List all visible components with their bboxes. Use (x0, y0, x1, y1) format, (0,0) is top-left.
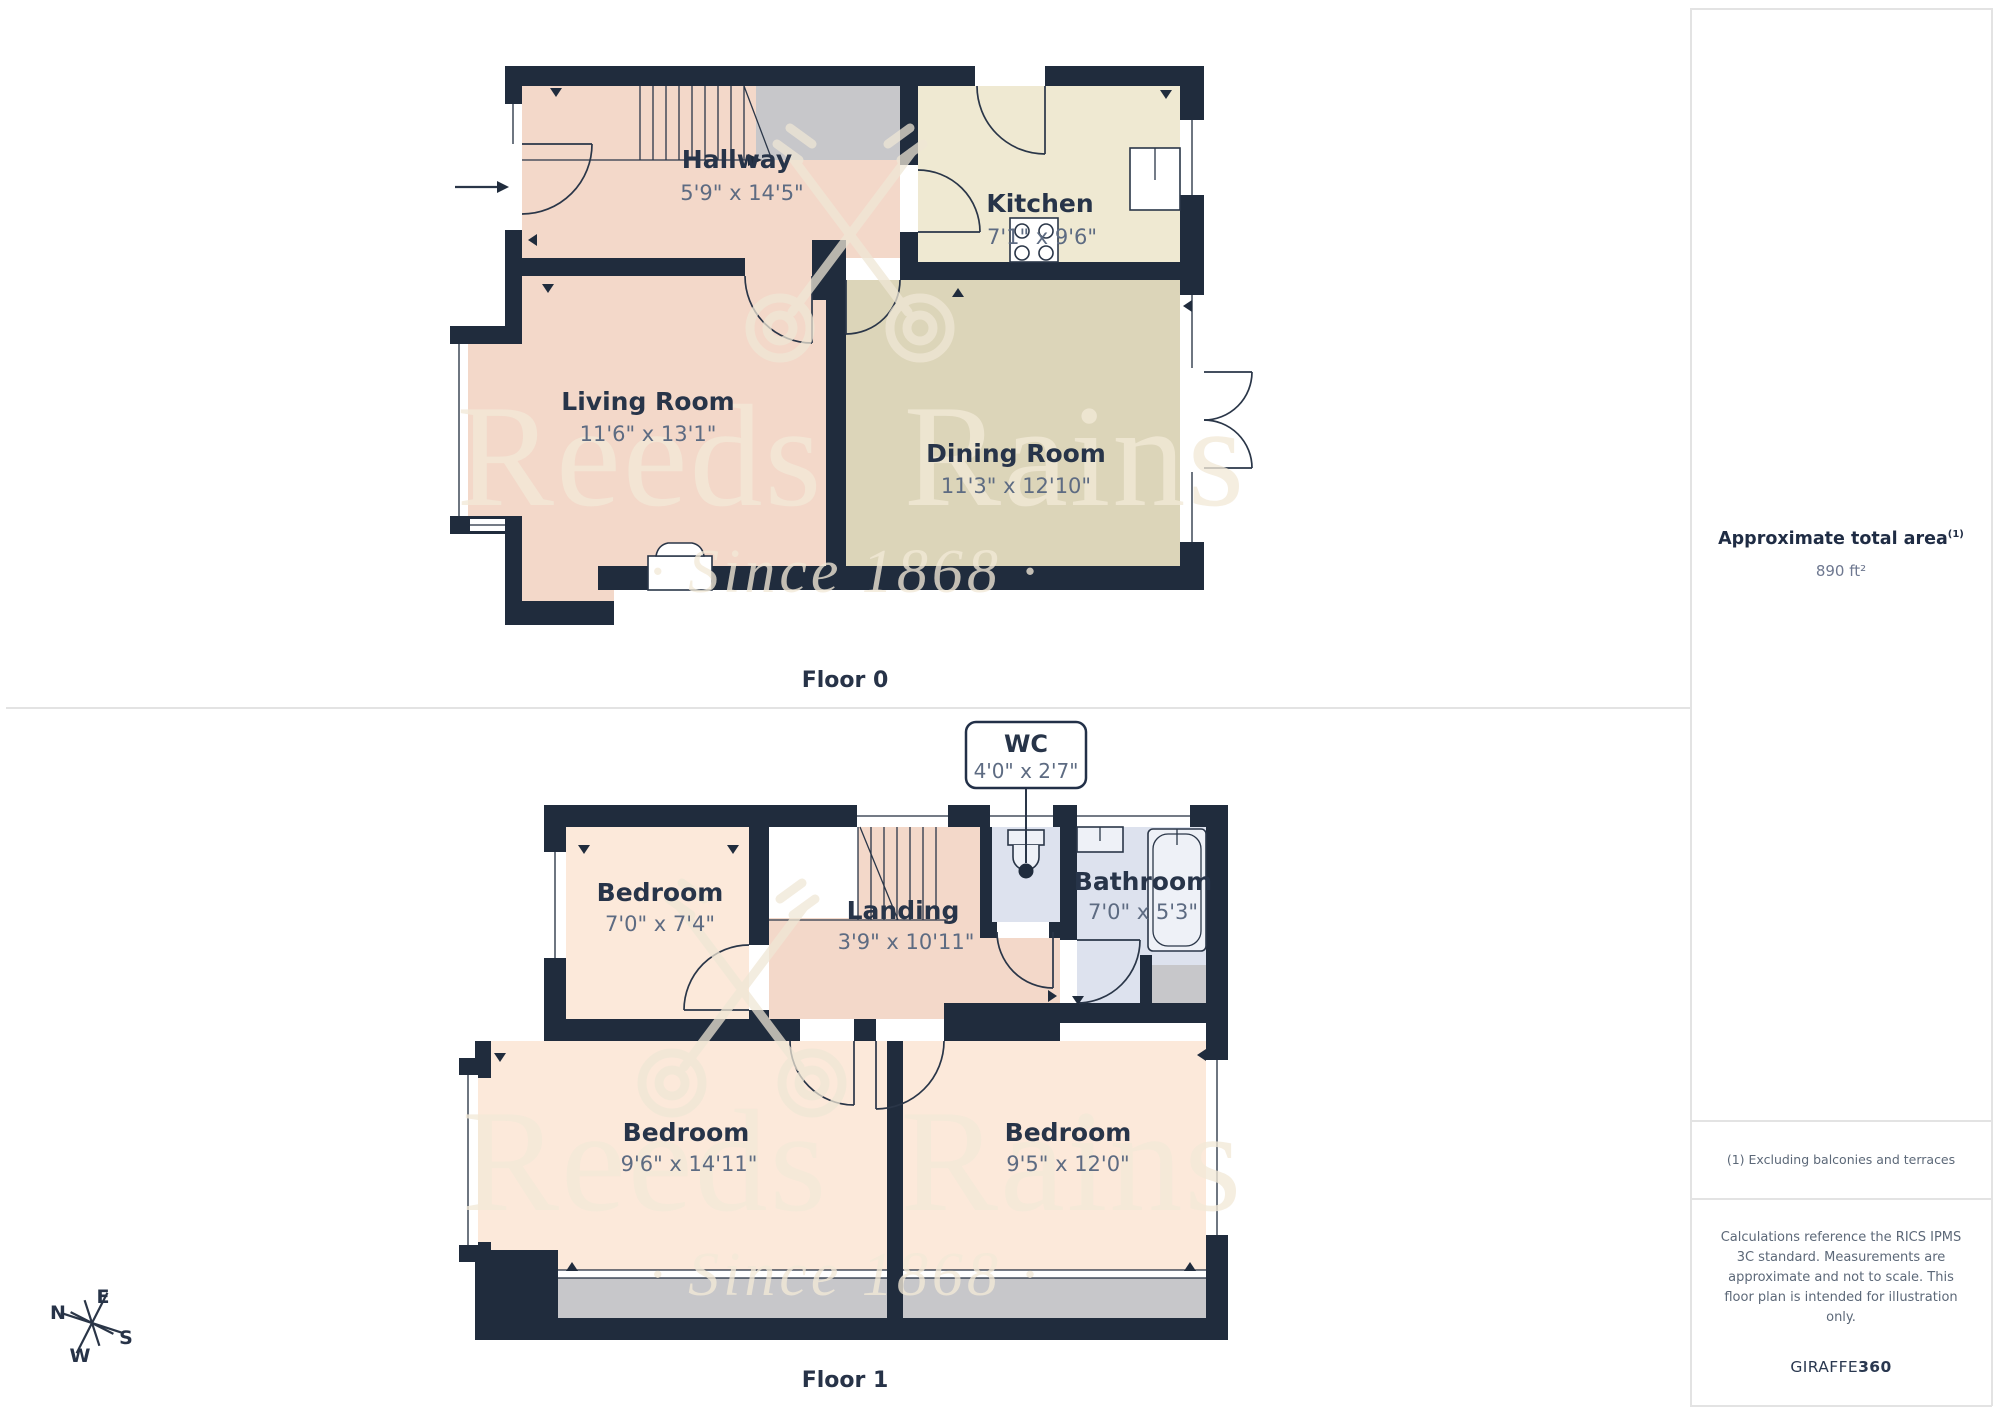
divider-floors (6, 707, 1690, 709)
sidebar-footnote-cell: (1) Excluding balconies and terraces (1690, 1121, 1992, 1198)
sink-icon (1077, 827, 1123, 852)
hall-door-gap (745, 258, 812, 276)
back-door-gap (975, 66, 1045, 86)
compass-n: N (50, 1302, 66, 1324)
bedroom-left-dims: 9'6" x 14'11" (621, 1152, 758, 1176)
kitchen-dims: 7'1" x 9'6" (987, 225, 1097, 249)
floorplan-page: Reeds Rains · Since 1868 · Hallway 5'9" … (0, 0, 2000, 1414)
sidebar-bottom-border (1690, 1405, 1992, 1407)
wc-callout-dot (1019, 864, 1034, 879)
compass: N E S W (50, 1286, 133, 1367)
hallway-dims: 5'9" x 14'5" (680, 181, 803, 205)
landing-label: Landing (847, 896, 960, 925)
entry-arrow-icon (455, 181, 509, 193)
living-room-label: Living Room (561, 387, 734, 416)
compass-s: S (119, 1327, 133, 1349)
bedroom-left-label: Bedroom (623, 1118, 750, 1147)
sidebar-area-cell: Approximate total area(1) 890 ft² (1690, 8, 1992, 1100)
landing-dims: 3'9" x 10'11" (838, 930, 975, 954)
dining-room-label: Dining Room (926, 439, 1106, 468)
chimney-gray (1152, 965, 1206, 1003)
bathroom-label: Bathroom (1074, 867, 1212, 896)
compass-e: E (97, 1286, 110, 1308)
hallway-label: Hallway (682, 145, 792, 174)
floor0-caption: Floor 0 (745, 668, 945, 693)
dining-room-dims: 11'3" x 12'10" (941, 474, 1091, 498)
bedroom-right-dims: 9'5" x 12'0" (1006, 1152, 1129, 1176)
bedroom-right-label: Bedroom (1005, 1118, 1132, 1147)
wc-label: WC (1004, 730, 1048, 758)
area-title: Approximate total area(1) (1718, 529, 1964, 549)
wc-dims: 4'0" x 2'7" (974, 759, 1079, 783)
watermark-tagline-f0: · Since 1868 · (649, 538, 1041, 606)
kitchen-label: Kitchen (986, 189, 1093, 218)
disclaimer-text: Calculations reference the RICS IPMS 3C … (1715, 1228, 1967, 1329)
kitchen-counter-icon (1130, 148, 1180, 210)
area-footnote-marker: (1) (1948, 529, 1964, 540)
watermark-tagline-f1: · Since 1868 · (649, 1241, 1041, 1309)
living-room-dims: 11'6" x 13'1" (580, 422, 717, 446)
footnote-text: (1) Excluding balconies and terraces (1727, 1152, 1955, 1167)
giraffe360-logo: GIRAFFE360 (1790, 1358, 1891, 1376)
floor1-caption: Floor 1 (745, 1368, 945, 1393)
bedroom-small-dims: 7'0" x 7'4" (605, 912, 715, 936)
compass-w: W (70, 1345, 91, 1367)
bathroom-dims: 7'0" x 5'3" (1088, 900, 1198, 924)
area-value: 890 ft² (1816, 562, 1866, 580)
sidebar-disclaimer-cell: Calculations reference the RICS IPMS 3C … (1690, 1199, 1992, 1405)
bedroom-small-label: Bedroom (597, 878, 724, 907)
